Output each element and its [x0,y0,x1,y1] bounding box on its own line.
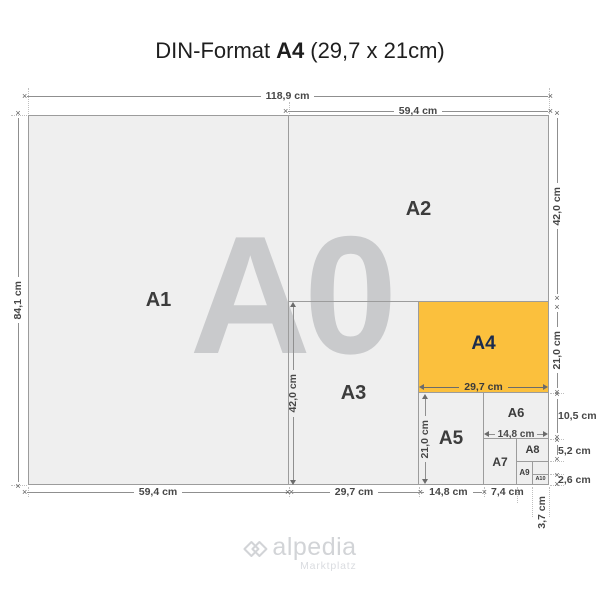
dim-a6-width-value: 14,8 cm [498,429,535,440]
alpedia-logo-icon [243,537,267,561]
dim-a4-width-inner: 29,7 cm [419,381,548,393]
arrow-right-icon [543,431,548,437]
format-box-a2: A2 [288,115,549,302]
logo-text: alpedia Marktplatz [272,534,356,572]
alpedia-logo: alpedia Marktplatz [243,534,356,572]
dim-a2-height: × 42,0 cm × [551,109,563,303]
dim-a3-width-value: 29,7 cm [335,486,374,498]
dim-a0-height-value: 84,1 cm [12,281,24,320]
title-prefix: DIN-Format [155,38,270,64]
format-box-a10: A10 [532,474,549,485]
dim-end-marker: × [548,92,553,101]
dim-a6-width-inner: 14,8 cm [484,428,548,440]
dim-end-marker: × [15,482,20,491]
dim-a1-width: × 59,4 cm × [22,486,294,498]
logo-name: alpedia [272,534,356,560]
format-label-a4: A4 [471,334,495,353]
dim-a4-height-value: 21,0 cm [551,331,563,370]
format-label-a10: A10 [535,477,545,483]
dim-a5-height-value: 21,0 cm [419,420,431,459]
format-box-a3: A3 [288,301,419,485]
format-label-a6: A6 [508,406,525,419]
dim-a2-width: × 59,4 cm × [283,105,553,117]
dim-a10-height-value: 2,6 cm [558,474,591,486]
dim-a3-height-inner: 42,0 cm [287,302,299,485]
dim-a7-width-value: 7,4 cm [491,486,524,498]
dim-a3-height-value: 42,0 cm [287,374,299,413]
dim-a7-width: 7,4 cm [486,486,530,498]
title-format-code: A4 [276,38,304,64]
dim-a5-height-inner: 21,0 cm [419,394,431,484]
dim-end-marker: × [15,109,20,118]
extension-line [532,487,533,517]
dim-a4-height: × 21,0 cm × [551,303,563,397]
dim-end-marker: × [554,303,559,312]
dim-a5-width: 14,8 cm × [415,486,487,498]
din-format-page: DIN-Format A4 (29,7 x 21cm) A0 A1 A2 A3 … [0,0,600,600]
dim-a1-width-value: 59,4 cm [139,486,178,498]
extension-line [549,487,550,517]
dim-end-marker: × [554,390,559,399]
dim-a2-height-value: 42,0 cm [551,187,563,226]
dim-a0-width-value: 118,9 cm [266,90,310,102]
format-label-a8: A8 [525,445,539,456]
dim-a3-width: × 29,7 cm × [285,486,423,498]
dim-a2-width-value: 59,4 cm [399,105,438,117]
format-label-a3: A3 [341,383,367,403]
format-box-a9: A9 [516,461,533,485]
dim-a10-width-value: 3,7 cm [536,496,548,529]
dim-end-marker: × [554,109,559,118]
format-box-a7: A7 [483,438,517,485]
format-label-a9: A9 [519,469,529,477]
format-label-a2: A2 [406,199,432,219]
arrow-right-icon [543,384,548,390]
arrow-down-icon [290,480,296,485]
title-size: (29,7 x 21cm) [310,38,445,64]
dim-a0-width: × 118,9 cm × [22,90,553,102]
dim-a6-height-value: 10,5 cm [558,410,597,422]
format-label-a5: A5 [439,429,463,448]
dim-a4-width-value: 29,7 cm [464,381,503,393]
dim-a8-height-value: 5,2 cm [558,445,591,457]
logo-tagline: Marktplatz [272,560,356,572]
arrow-down-icon [422,479,428,484]
dim-end-marker: × [554,436,559,445]
format-box-a4-highlighted: A4 [418,301,549,393]
page-title: DIN-Format A4 (29,7 x 21cm) [0,38,600,64]
dim-a5-width-value: 14,8 cm [429,486,468,498]
format-box-a8: A8 [516,438,549,462]
format-label-a7: A7 [492,456,507,468]
dim-a0-height: × 84,1 cm × [12,109,24,491]
format-label-a1: A1 [146,290,172,310]
format-box-a1: A1 [28,115,289,485]
